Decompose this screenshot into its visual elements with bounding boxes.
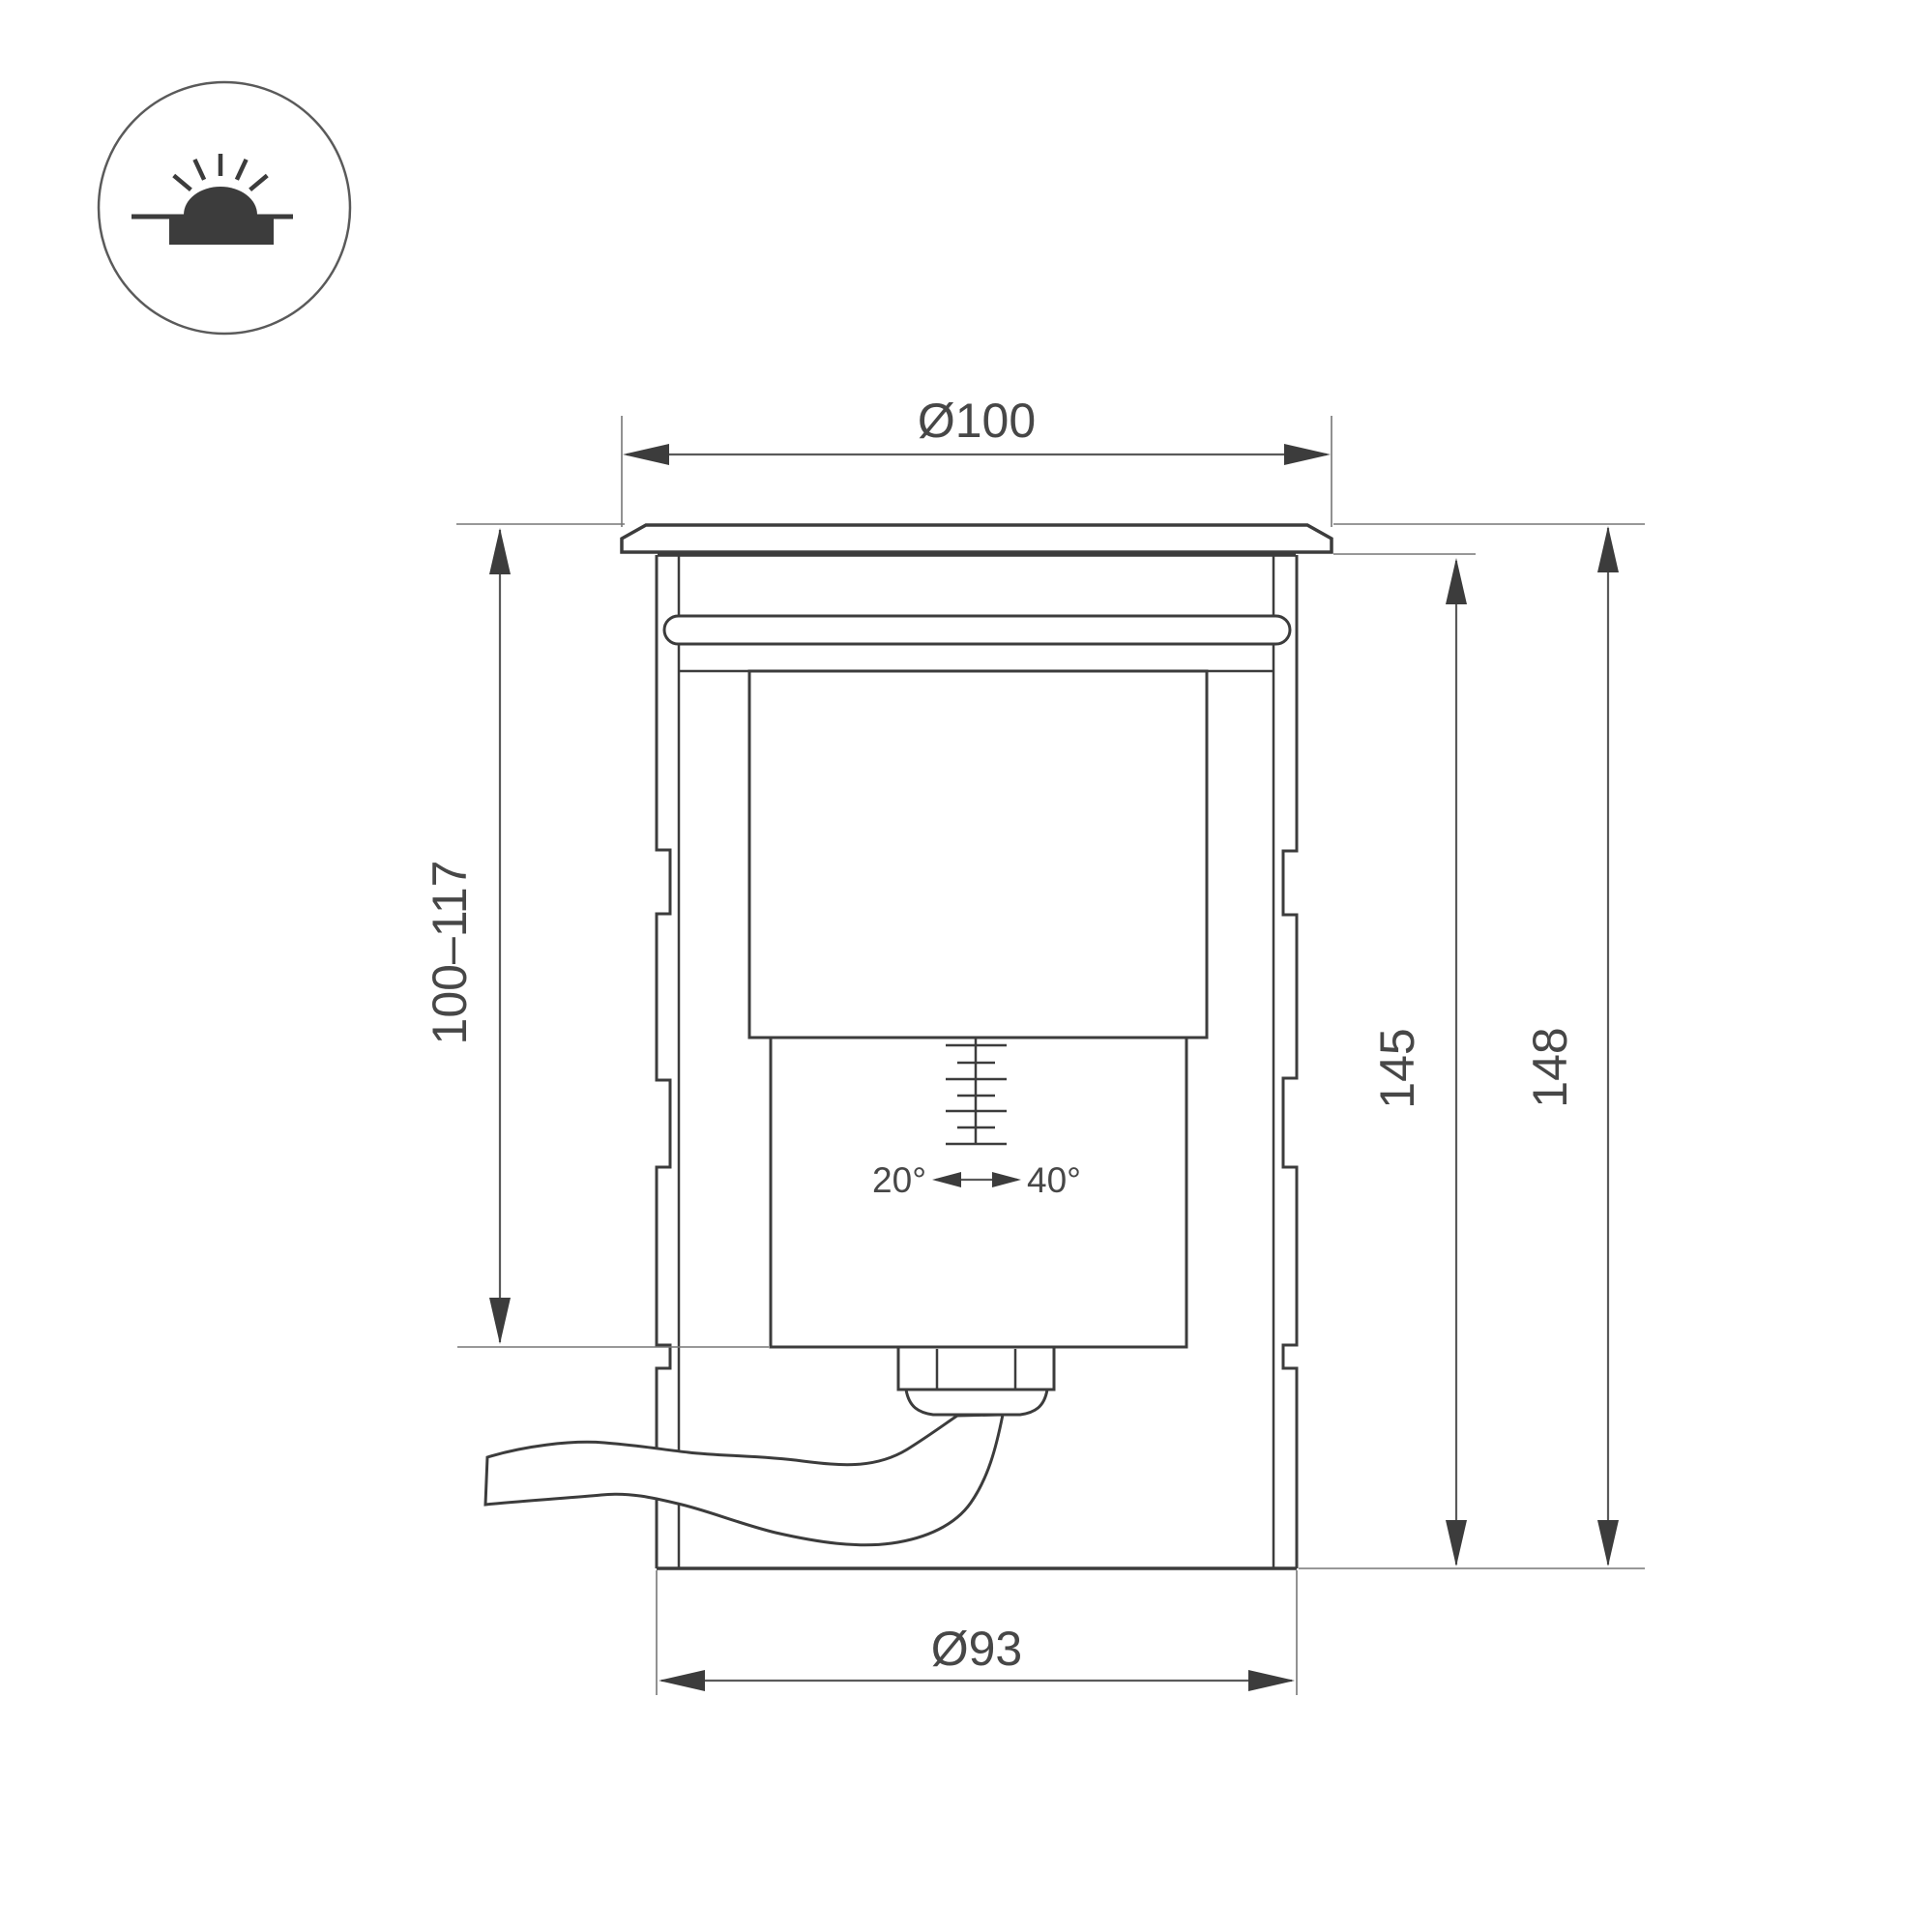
dim-top-diameter: Ø100 <box>622 394 1332 527</box>
body-right-wall <box>1283 555 1297 1568</box>
luminaire-section: 20° 40° <box>485 525 1332 1568</box>
gland-dome <box>906 1390 1047 1415</box>
supply-cable <box>485 1415 1003 1545</box>
dim-overall-height-label: 148 <box>1523 1027 1577 1107</box>
recessed-ground-light-icon <box>99 82 350 334</box>
gland-nut <box>898 1347 1054 1390</box>
cable-gland <box>898 1347 1054 1415</box>
tilt-min-label: 20° <box>872 1160 926 1200</box>
dim-recess-depth-label: 100–117 <box>423 861 477 1045</box>
dim-bottom-diameter-label: Ø93 <box>931 1622 1023 1676</box>
dim-bottom-diameter: Ø93 <box>657 1570 1297 1695</box>
dim-top-diameter-label: Ø100 <box>918 394 1036 448</box>
technical-drawing: 20° 40° Ø100 <box>0 0 1932 1932</box>
dim-overall-height: 148 <box>1299 524 1645 1568</box>
lamp-housing <box>749 671 1207 1038</box>
dim-body-height: 145 <box>1333 554 1476 1566</box>
recessed-body-icon <box>169 215 274 245</box>
drawing-page: 20° 40° Ø100 <box>0 0 1932 1932</box>
tilt-max-label: 40° <box>1027 1160 1081 1200</box>
dim-recess-depth: 100–117 <box>423 524 769 1347</box>
body-left-wall <box>657 555 670 1568</box>
driver-housing <box>771 1038 1186 1347</box>
flange <box>622 525 1332 552</box>
dim-body-height-label: 145 <box>1370 1028 1424 1108</box>
sealing-ring <box>664 616 1290 644</box>
